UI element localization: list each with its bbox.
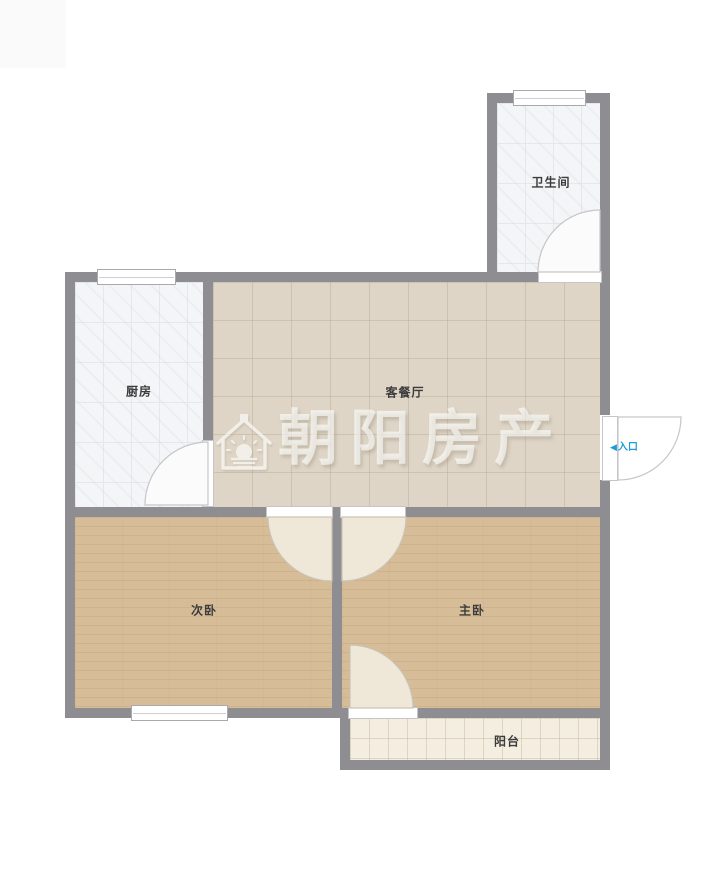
secondary-bedroom-door-arc — [268, 517, 332, 581]
kitchen-door-arc — [145, 442, 208, 505]
room-label-living-dining: 客餐厅 — [385, 384, 424, 401]
room-label-secondary-bedroom: 次卧 — [191, 602, 217, 619]
bathroom-door-arc — [538, 210, 600, 272]
room-label-kitchen: 厨房 — [126, 383, 152, 400]
entrance-text: 入口 — [618, 442, 638, 453]
room-label-bathroom: 卫生间 — [531, 174, 570, 191]
floor-plan: 卫生间 厨房 客餐厅 次卧 主卧 阳台 ◀入口 朝阳房产 — [0, 0, 720, 889]
entrance-label: ◀入口 — [610, 443, 638, 453]
room-label-master-bedroom: 主卧 — [459, 602, 485, 619]
room-label-balcony: 阳台 — [494, 733, 520, 750]
master-bedroom-door-arc — [342, 517, 406, 581]
balcony-door-arc — [350, 645, 413, 708]
entrance-arrow-icon: ◀ — [610, 443, 617, 453]
